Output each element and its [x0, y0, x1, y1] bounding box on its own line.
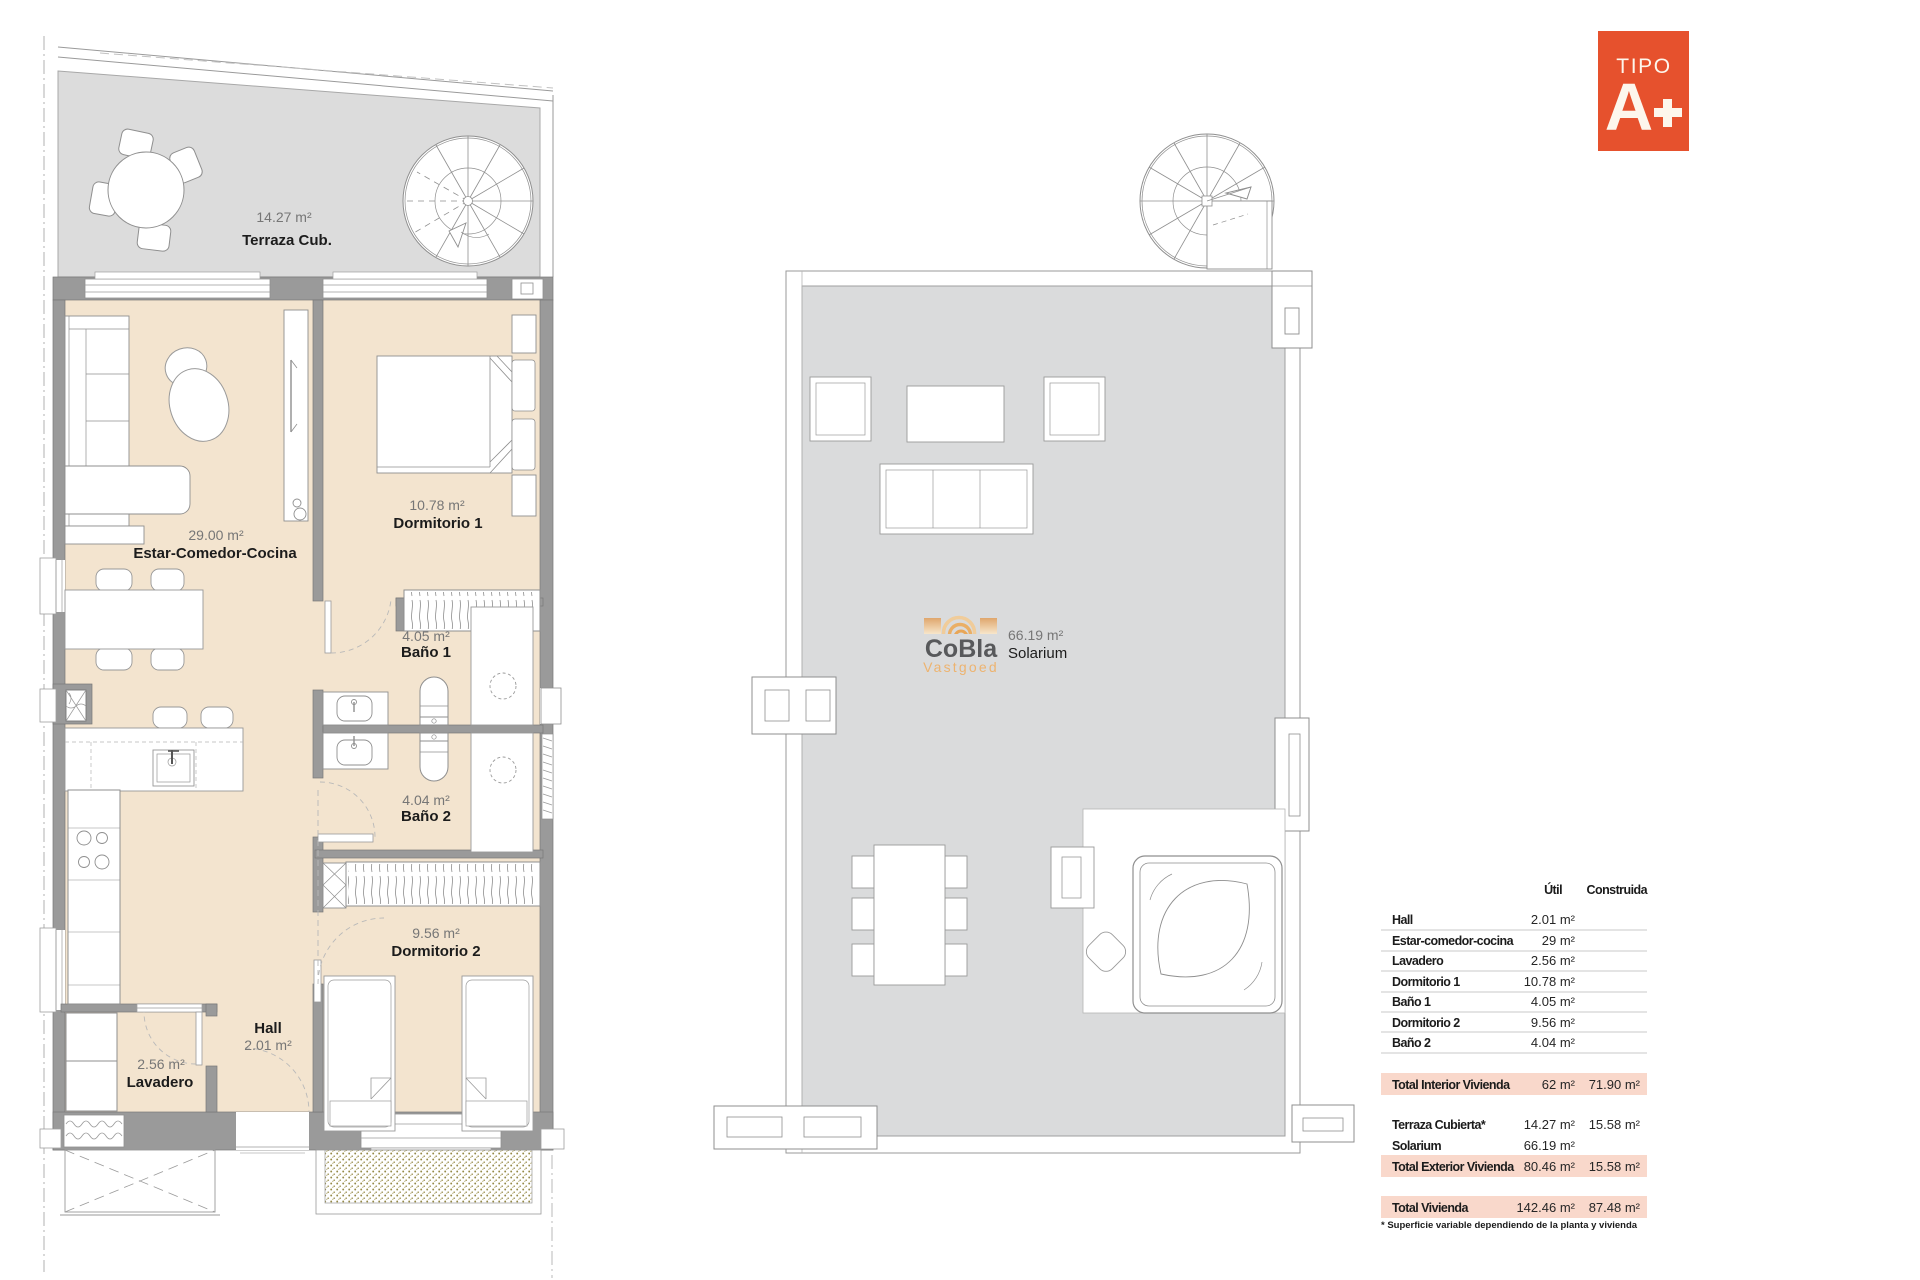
svg-text:4.05 m²: 4.05 m²	[402, 628, 450, 644]
svg-text:10.78 m²: 10.78 m²	[409, 497, 465, 513]
svg-text:14.27 m²: 14.27 m²	[256, 209, 312, 225]
svg-text:Terraza Cub.: Terraza Cub.	[242, 232, 332, 249]
svg-text:Baño 1: Baño 1	[1392, 995, 1431, 1009]
svg-text:Estar-comedor-cocina: Estar-comedor-cocina	[1392, 934, 1515, 948]
svg-text:4.05 m²: 4.05 m²	[1531, 994, 1576, 1009]
svg-text:142.46 m²: 142.46 m²	[1516, 1200, 1575, 1215]
svg-text:66.19 m²: 66.19 m²	[1008, 627, 1064, 643]
svg-text:Total Exterior Vivienda: Total Exterior Vivienda	[1392, 1160, 1515, 1174]
svg-text:Estar-Comedor-Cocina: Estar-Comedor-Cocina	[133, 545, 297, 562]
svg-text:2.56 m²: 2.56 m²	[1531, 953, 1576, 968]
svg-text:15.58 m²: 15.58 m²	[1589, 1117, 1641, 1132]
svg-text:71.90 m²: 71.90 m²	[1589, 1077, 1641, 1092]
svg-text:66.19 m²: 66.19 m²	[1524, 1138, 1576, 1153]
svg-text:2.01 m²: 2.01 m²	[1531, 912, 1576, 927]
svg-text:Solarium: Solarium	[1392, 1139, 1442, 1153]
svg-text:87.48 m²: 87.48 m²	[1589, 1200, 1641, 1215]
svg-text:14.27 m²: 14.27 m²	[1524, 1117, 1576, 1132]
svg-text:Construida: Construida	[1587, 883, 1649, 897]
svg-text:29.00 m²: 29.00 m²	[188, 527, 244, 543]
svg-text:Lavadero: Lavadero	[1392, 954, 1444, 968]
svg-text:* Superficie variable dependie: * Superficie variable dependiendo de la …	[1381, 1220, 1638, 1231]
svg-text:Hall: Hall	[254, 1020, 282, 1037]
svg-text:Dormitorio 2: Dormitorio 2	[391, 943, 480, 960]
svg-text:9.56 m²: 9.56 m²	[1531, 1015, 1576, 1030]
svg-text:4.04 m²: 4.04 m²	[402, 792, 450, 808]
svg-text:Hall: Hall	[1392, 913, 1413, 927]
svg-text:Baño 2: Baño 2	[1392, 1036, 1431, 1050]
svg-text:Dormitorio 1: Dormitorio 1	[1392, 975, 1460, 989]
svg-text:2.56 m²: 2.56 m²	[137, 1056, 185, 1072]
svg-text:10.78 m²: 10.78 m²	[1524, 974, 1576, 989]
svg-text:15.58 m²: 15.58 m²	[1589, 1159, 1641, 1174]
svg-text:4.04 m²: 4.04 m²	[1531, 1035, 1576, 1050]
svg-text:29 m²: 29 m²	[1542, 933, 1576, 948]
svg-text:Dormitorio 1: Dormitorio 1	[393, 515, 482, 532]
svg-text:Baño 2: Baño 2	[401, 808, 451, 825]
svg-text:Total Vivienda: Total Vivienda	[1392, 1201, 1469, 1215]
svg-text:2.01 m²: 2.01 m²	[244, 1037, 292, 1053]
svg-text:Solarium: Solarium	[1008, 645, 1067, 662]
svg-text:A: A	[1605, 70, 1653, 145]
svg-text:Dormitorio 2: Dormitorio 2	[1392, 1016, 1460, 1030]
svg-text:Total Interior Vivienda: Total Interior Vivienda	[1392, 1078, 1511, 1092]
svg-text:Útil: Útil	[1544, 882, 1562, 897]
svg-text:Lavadero: Lavadero	[127, 1074, 194, 1091]
svg-text:80.46 m²: 80.46 m²	[1524, 1159, 1576, 1174]
svg-text:Vastgoed: Vastgoed	[923, 659, 999, 675]
svg-text:62 m²: 62 m²	[1542, 1077, 1576, 1092]
svg-text:9.56 m²: 9.56 m²	[412, 925, 460, 941]
svg-text:Baño 1: Baño 1	[401, 644, 451, 661]
svg-text:Terraza Cubierta*: Terraza Cubierta*	[1392, 1118, 1486, 1132]
